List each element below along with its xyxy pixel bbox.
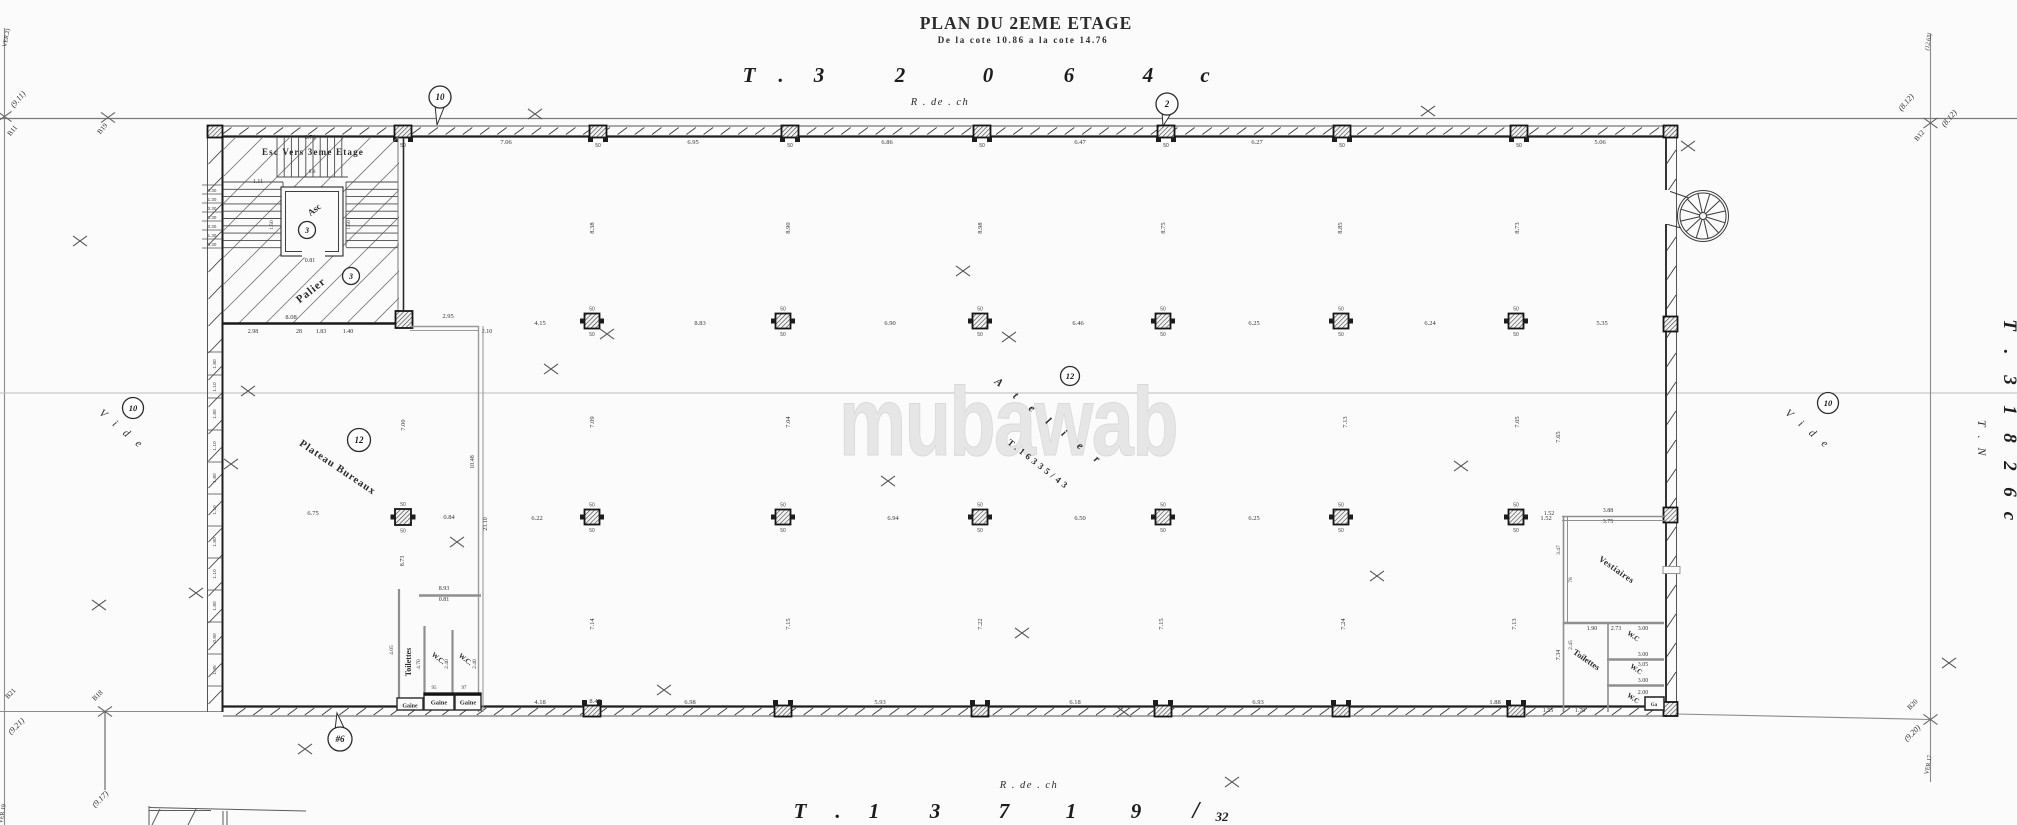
svg-text:T: T bbox=[1999, 319, 2017, 332]
svg-text:3: 3 bbox=[929, 799, 941, 823]
svg-text:1.52: 1.52 bbox=[1540, 515, 1551, 522]
svg-text:6.94: 6.94 bbox=[887, 515, 899, 522]
svg-text:2.00: 2.00 bbox=[1638, 690, 1649, 696]
svg-text:c: c bbox=[1999, 512, 2017, 521]
svg-text:2: 2 bbox=[894, 63, 906, 87]
svg-text:8.73: 8.73 bbox=[1514, 222, 1521, 233]
svg-text:7.14: 7.14 bbox=[589, 618, 596, 630]
svg-text:8.85: 8.85 bbox=[1337, 222, 1344, 233]
svg-text:Ga: Ga bbox=[1651, 703, 1658, 708]
svg-text:50: 50 bbox=[977, 503, 983, 509]
svg-text:50: 50 bbox=[1339, 143, 1345, 149]
svg-text:T: T bbox=[743, 63, 757, 87]
svg-text:1.50: 1.50 bbox=[269, 220, 275, 230]
svg-text:50: 50 bbox=[979, 143, 985, 149]
svg-text:8.75: 8.75 bbox=[1160, 222, 1167, 233]
svg-text:10: 10 bbox=[1824, 398, 1833, 408]
svg-text:1.88: 1.88 bbox=[1489, 699, 1500, 706]
svg-text:3.88: 3.88 bbox=[1603, 508, 1614, 514]
svg-text:PLAN DU 2EME ETAGE: PLAN DU 2EME ETAGE bbox=[920, 13, 1133, 33]
svg-text:1.30: 1.30 bbox=[208, 215, 217, 220]
svg-text:50: 50 bbox=[1338, 503, 1344, 509]
svg-text:10: 10 bbox=[436, 92, 446, 102]
svg-text:Toilettes: Toilettes bbox=[404, 648, 413, 677]
svg-text:6.46: 6.46 bbox=[1072, 320, 1084, 327]
svg-text:50: 50 bbox=[780, 528, 786, 534]
svg-text:0.30: 0.30 bbox=[208, 242, 217, 247]
svg-text:8.90: 8.90 bbox=[785, 222, 792, 233]
svg-text:1.80: 1.80 bbox=[212, 409, 218, 419]
svg-text:32: 32 bbox=[1215, 809, 1230, 824]
svg-text:50: 50 bbox=[1513, 307, 1519, 313]
svg-text:6.24: 6.24 bbox=[1424, 320, 1436, 327]
svg-text:1.55: 1.55 bbox=[1543, 708, 1554, 714]
svg-text:7.00: 7.00 bbox=[400, 419, 407, 430]
svg-text:6.25: 6.25 bbox=[1248, 515, 1259, 522]
svg-text:T: T bbox=[794, 799, 808, 823]
svg-text:8.38: 8.38 bbox=[589, 222, 596, 233]
svg-text:50: 50 bbox=[1513, 528, 1519, 534]
svg-text:6: 6 bbox=[1064, 63, 1075, 87]
svg-text:1.10: 1.10 bbox=[212, 505, 218, 515]
svg-text:7.34: 7.34 bbox=[1556, 650, 1562, 661]
svg-text:4.05: 4.05 bbox=[389, 645, 395, 655]
svg-text:0.81: 0.81 bbox=[439, 597, 450, 603]
svg-text:8.83: 8.83 bbox=[694, 320, 705, 327]
svg-text:1.10: 1.10 bbox=[212, 569, 218, 579]
svg-text:4.70: 4.70 bbox=[416, 659, 422, 669]
svg-text:50: 50 bbox=[400, 502, 406, 508]
svg-text:50: 50 bbox=[589, 332, 595, 338]
svg-text:50: 50 bbox=[589, 528, 595, 534]
svg-text:Gaine: Gaine bbox=[460, 700, 477, 707]
svg-text:95: 95 bbox=[432, 686, 438, 691]
svg-text:50: 50 bbox=[977, 528, 983, 534]
svg-text:50: 50 bbox=[1513, 503, 1519, 509]
svg-text:De la cote 10.86 a la cote 14.: De la cote 10.86 a la cote 14.76 bbox=[938, 35, 1109, 45]
svg-text:1.11: 1.11 bbox=[253, 179, 263, 185]
svg-text:Gaine: Gaine bbox=[402, 704, 418, 710]
svg-text:78: 78 bbox=[1568, 577, 1574, 583]
svg-text:1.10: 1.10 bbox=[212, 441, 218, 451]
svg-text:R . de . ch: R . de . ch bbox=[910, 97, 970, 108]
svg-text:5.93: 5.93 bbox=[874, 699, 885, 706]
svg-text:7.15: 7.15 bbox=[1158, 618, 1165, 629]
svg-text:c: c bbox=[1200, 63, 1210, 87]
svg-text:6.86: 6.86 bbox=[881, 139, 893, 146]
svg-text:50: 50 bbox=[977, 332, 983, 338]
svg-text:#6: #6 bbox=[335, 734, 346, 744]
svg-text:T . N: T . N bbox=[1975, 420, 1989, 458]
svg-text:Gaine: Gaine bbox=[431, 700, 448, 707]
svg-text:50: 50 bbox=[780, 332, 786, 338]
svg-text:8.70: 8.70 bbox=[305, 135, 316, 141]
svg-text:1.90: 1.90 bbox=[1587, 626, 1598, 632]
svg-text:3: 3 bbox=[348, 272, 353, 281]
svg-text:1.30: 1.30 bbox=[208, 233, 217, 238]
svg-text:2.40: 2.40 bbox=[444, 659, 450, 669]
svg-text:50: 50 bbox=[589, 307, 595, 313]
svg-text:4: 4 bbox=[1142, 63, 1154, 87]
svg-text:7.65: 7.65 bbox=[1555, 431, 1562, 442]
svg-text:8.73: 8.73 bbox=[400, 556, 406, 567]
svg-text:7.04: 7.04 bbox=[785, 416, 792, 428]
svg-text:6.22: 6.22 bbox=[531, 515, 542, 522]
svg-text:50: 50 bbox=[977, 307, 983, 313]
svg-text:1.30: 1.30 bbox=[208, 197, 217, 202]
svg-text:10: 10 bbox=[129, 403, 138, 413]
svg-text:1.40: 1.40 bbox=[343, 329, 354, 335]
svg-text:6.95: 6.95 bbox=[687, 139, 698, 146]
svg-text:6.75: 6.75 bbox=[307, 510, 318, 517]
svg-text:1.10: 1.10 bbox=[212, 382, 218, 392]
svg-text:7.06: 7.06 bbox=[500, 139, 512, 146]
svg-text:8.93: 8.93 bbox=[439, 586, 450, 592]
svg-text:1.80: 1.80 bbox=[212, 473, 218, 483]
svg-text:4.15: 4.15 bbox=[534, 320, 545, 327]
svg-text:9: 9 bbox=[1131, 799, 1142, 823]
svg-text:12: 12 bbox=[355, 435, 365, 445]
svg-text:7.05: 7.05 bbox=[1514, 416, 1521, 427]
svg-text:97: 97 bbox=[462, 686, 468, 691]
svg-text:1.80: 1.80 bbox=[212, 601, 218, 611]
svg-text:0.30: 0.30 bbox=[208, 206, 217, 211]
svg-text:5.06: 5.06 bbox=[1594, 139, 1606, 146]
svg-text:2.98: 2.98 bbox=[248, 329, 259, 335]
svg-text:3.00: 3.00 bbox=[1638, 626, 1649, 632]
svg-text:50: 50 bbox=[787, 143, 793, 149]
svg-text:2: 2 bbox=[1164, 99, 1170, 109]
svg-text:50: 50 bbox=[595, 143, 601, 149]
svg-text:4.18: 4.18 bbox=[534, 699, 545, 706]
svg-text:1.35: 1.35 bbox=[212, 665, 218, 675]
svg-text:1.83: 1.83 bbox=[316, 329, 327, 335]
svg-text:10.48: 10.48 bbox=[470, 455, 476, 469]
svg-text:50: 50 bbox=[1513, 332, 1519, 338]
svg-text:5.35: 5.35 bbox=[1596, 320, 1607, 327]
svg-text:6.50: 6.50 bbox=[1074, 515, 1085, 522]
svg-text:0.81: 0.81 bbox=[305, 258, 316, 264]
svg-text:2.73: 2.73 bbox=[1611, 626, 1622, 632]
svg-text:0.84: 0.84 bbox=[443, 514, 455, 521]
svg-text:2: 2 bbox=[1999, 460, 2017, 471]
svg-text:0.90: 0.90 bbox=[212, 633, 218, 643]
svg-text:50: 50 bbox=[780, 503, 786, 509]
svg-text:3: 3 bbox=[813, 63, 825, 87]
svg-text:1: 1 bbox=[1066, 799, 1077, 823]
svg-text:50: 50 bbox=[1516, 143, 1522, 149]
svg-text:.: . bbox=[835, 799, 840, 823]
svg-text:8.98: 8.98 bbox=[977, 222, 984, 233]
svg-text:50: 50 bbox=[1338, 528, 1344, 534]
svg-text:0: 0 bbox=[983, 63, 994, 87]
svg-text:7: 7 bbox=[999, 799, 1011, 823]
svg-text:R . de . ch: R . de . ch bbox=[999, 780, 1059, 791]
svg-text:7.13: 7.13 bbox=[1511, 618, 1518, 629]
svg-text:7.22: 7.22 bbox=[977, 618, 984, 629]
svg-text:0.30: 0.30 bbox=[208, 188, 217, 193]
svg-text:50: 50 bbox=[1160, 332, 1166, 338]
svg-text:1: 1 bbox=[1999, 405, 2017, 415]
svg-text:7.15: 7.15 bbox=[785, 618, 792, 629]
svg-text:7.13: 7.13 bbox=[1342, 416, 1349, 427]
svg-text:3: 3 bbox=[304, 226, 309, 235]
svg-text:7.09: 7.09 bbox=[589, 416, 596, 427]
svg-text:1.50: 1.50 bbox=[346, 220, 352, 230]
svg-text:6.25: 6.25 bbox=[1248, 320, 1259, 327]
svg-text:3: 3 bbox=[1999, 374, 2017, 385]
svg-text:50: 50 bbox=[780, 307, 786, 313]
svg-text:6.27: 6.27 bbox=[1251, 139, 1263, 146]
svg-text:2.40: 2.40 bbox=[472, 659, 478, 669]
svg-text:.: . bbox=[778, 63, 783, 87]
svg-text:50: 50 bbox=[1160, 307, 1166, 313]
svg-text:23.10: 23.10 bbox=[483, 517, 489, 531]
svg-text:1.70: 1.70 bbox=[1575, 708, 1586, 714]
svg-text:6.47: 6.47 bbox=[1074, 139, 1086, 146]
svg-text:8.47: 8.47 bbox=[589, 698, 601, 705]
svg-text:.: . bbox=[1999, 350, 2017, 355]
svg-text:8.8: 8.8 bbox=[309, 169, 316, 175]
svg-text:3.00: 3.00 bbox=[1638, 678, 1649, 684]
svg-text:7.24: 7.24 bbox=[1340, 618, 1347, 630]
svg-text:50: 50 bbox=[400, 529, 406, 535]
svg-text:6.18: 6.18 bbox=[1069, 699, 1080, 706]
svg-text:0.30: 0.30 bbox=[208, 224, 217, 229]
svg-text:3.75: 3.75 bbox=[1603, 519, 1614, 525]
svg-text:8.08: 8.08 bbox=[285, 314, 296, 321]
svg-text:3.05: 3.05 bbox=[1638, 662, 1649, 668]
svg-text:50: 50 bbox=[1163, 143, 1169, 149]
svg-text:6.90: 6.90 bbox=[884, 320, 895, 327]
svg-text:50: 50 bbox=[1160, 528, 1166, 534]
svg-text:1.80: 1.80 bbox=[212, 359, 218, 369]
svg-text:2.95: 2.95 bbox=[442, 313, 453, 320]
svg-text:3.47: 3.47 bbox=[1556, 545, 1562, 555]
svg-text:6.93: 6.93 bbox=[1252, 699, 1263, 706]
svg-text:28: 28 bbox=[296, 329, 302, 335]
svg-text:2.45: 2.45 bbox=[1568, 640, 1574, 650]
svg-text:1: 1 bbox=[869, 799, 880, 823]
svg-text:6.98: 6.98 bbox=[684, 699, 695, 706]
svg-text:50: 50 bbox=[1160, 503, 1166, 509]
svg-text:50: 50 bbox=[589, 503, 595, 509]
svg-text:8: 8 bbox=[1999, 433, 2017, 443]
svg-text:50: 50 bbox=[1338, 307, 1344, 313]
svg-text:6: 6 bbox=[1999, 487, 2017, 497]
svg-text:50: 50 bbox=[1338, 332, 1344, 338]
svg-text:Esc Vers 3eme Etage: Esc Vers 3eme Etage bbox=[262, 147, 364, 157]
svg-text:1.80: 1.80 bbox=[212, 537, 218, 547]
svg-text:3.00: 3.00 bbox=[1638, 652, 1649, 658]
svg-text:12: 12 bbox=[1066, 371, 1075, 381]
